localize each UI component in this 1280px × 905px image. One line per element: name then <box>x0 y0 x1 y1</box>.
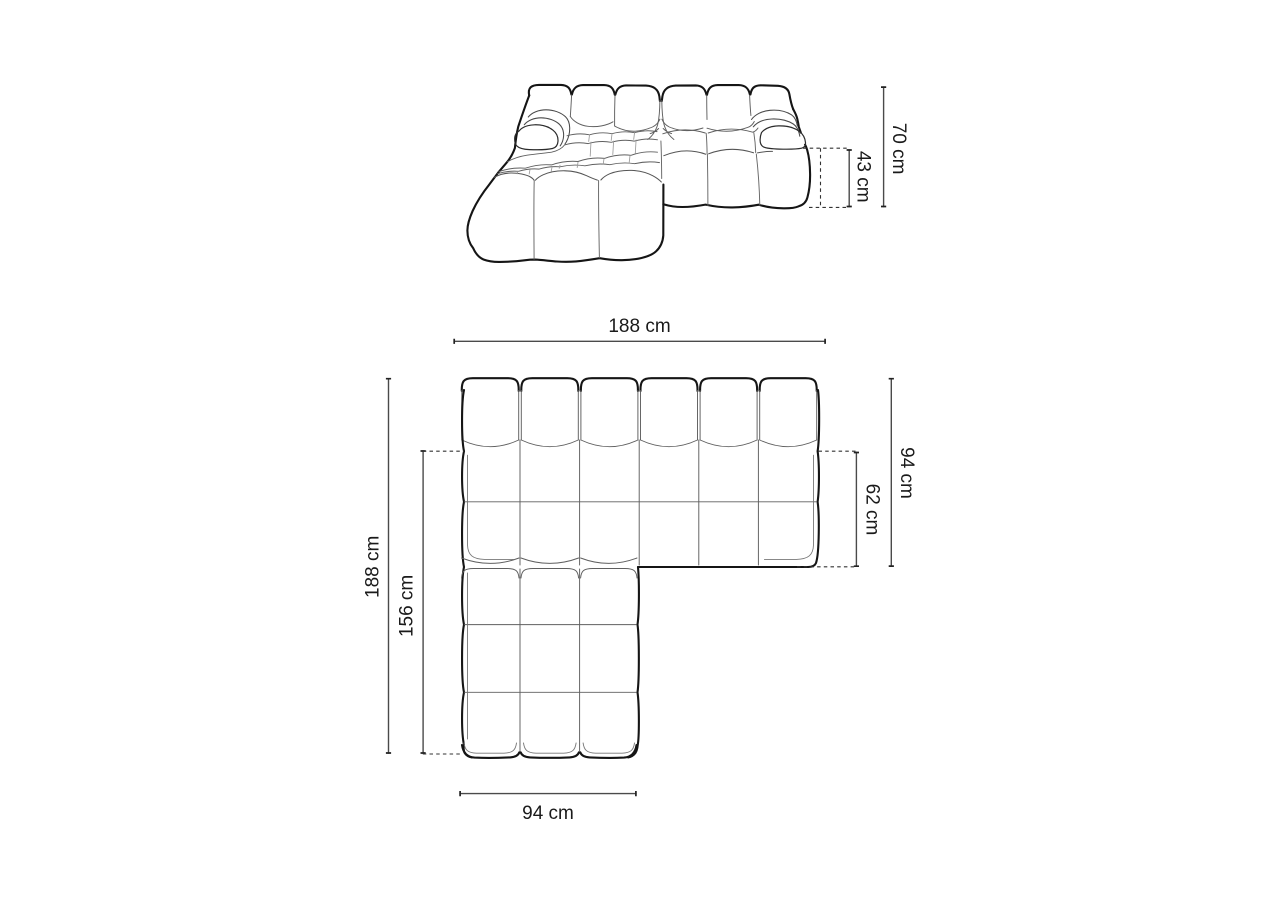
svg-text:70 cm: 70 cm <box>888 123 909 175</box>
svg-text:43 cm: 43 cm <box>852 151 873 203</box>
svg-text:188 cm: 188 cm <box>608 316 670 337</box>
svg-text:156 cm: 156 cm <box>397 575 418 637</box>
svg-text:94 cm: 94 cm <box>896 447 917 499</box>
svg-text:188 cm: 188 cm <box>362 536 383 598</box>
svg-text:62 cm: 62 cm <box>861 484 882 536</box>
svg-text:94 cm: 94 cm <box>522 803 574 824</box>
